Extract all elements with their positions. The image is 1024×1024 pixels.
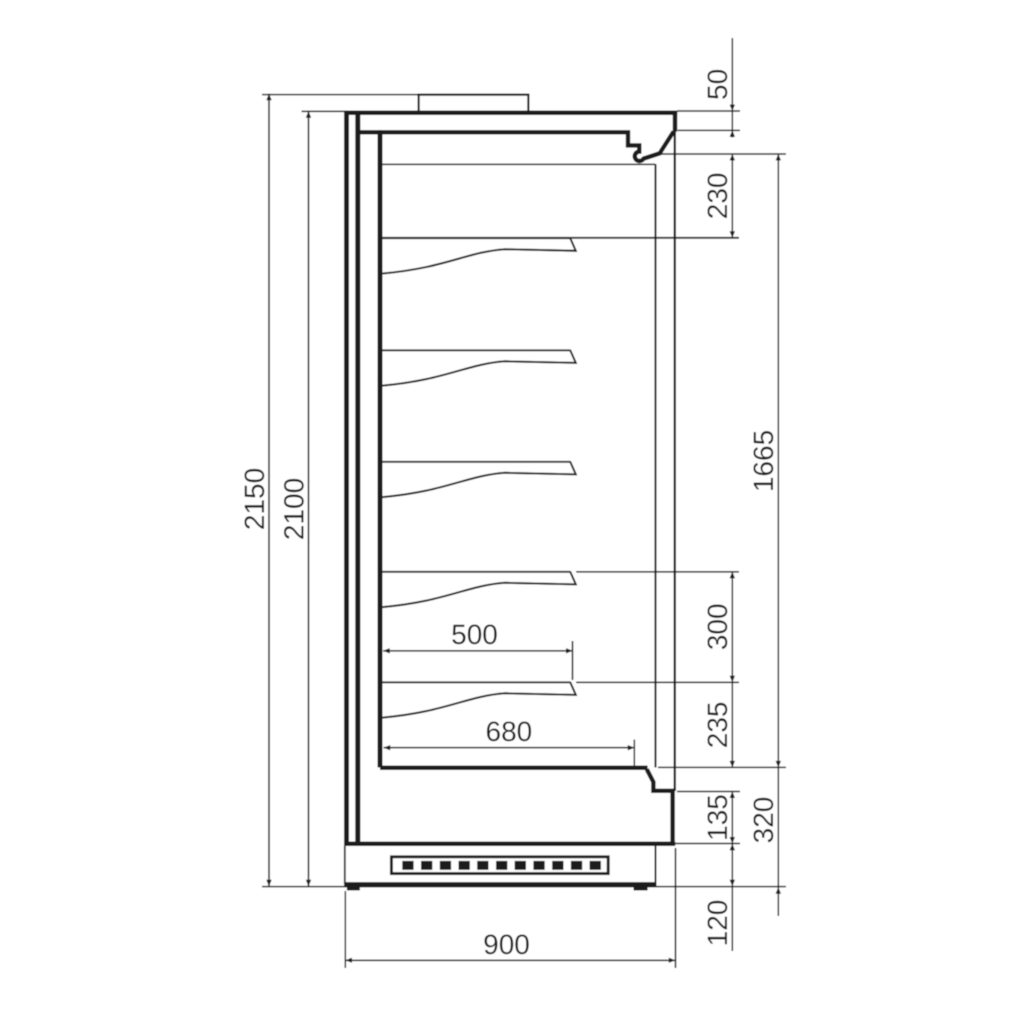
svg-text:120: 120 (702, 900, 733, 947)
svg-text:680: 680 (486, 716, 533, 747)
svg-text:2150: 2150 (239, 468, 270, 530)
svg-text:2100: 2100 (279, 478, 310, 540)
svg-text:230: 230 (702, 173, 733, 220)
svg-text:1665: 1665 (748, 430, 779, 492)
svg-text:235: 235 (702, 702, 733, 749)
svg-text:300: 300 (702, 603, 733, 650)
svg-text:320: 320 (748, 797, 779, 844)
svg-text:900: 900 (483, 929, 530, 960)
svg-text:135: 135 (702, 794, 733, 841)
svg-text:500: 500 (451, 619, 498, 650)
svg-text:50: 50 (702, 69, 733, 100)
